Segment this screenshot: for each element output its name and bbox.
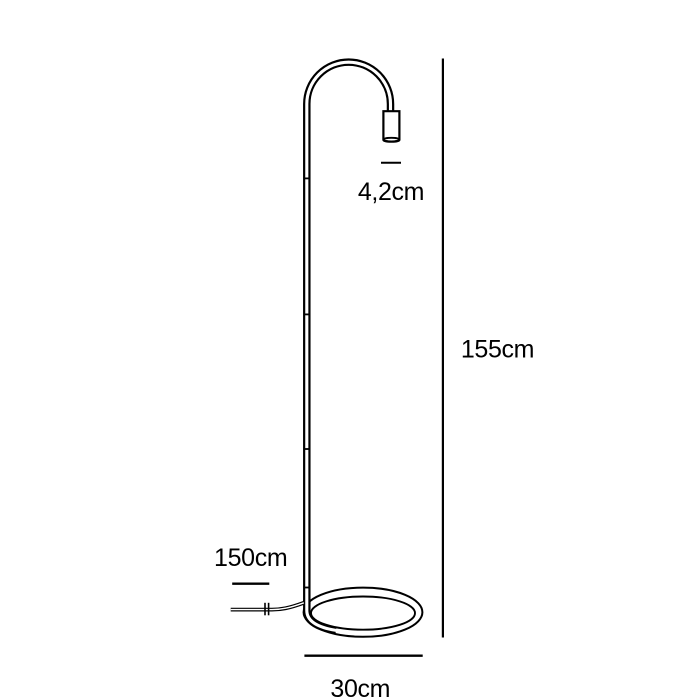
svg-text:155cm: 155cm xyxy=(461,336,534,364)
svg-text:30cm: 30cm xyxy=(330,675,390,700)
svg-text:4,2cm: 4,2cm xyxy=(358,178,424,206)
svg-text:150cm: 150cm xyxy=(214,544,287,572)
